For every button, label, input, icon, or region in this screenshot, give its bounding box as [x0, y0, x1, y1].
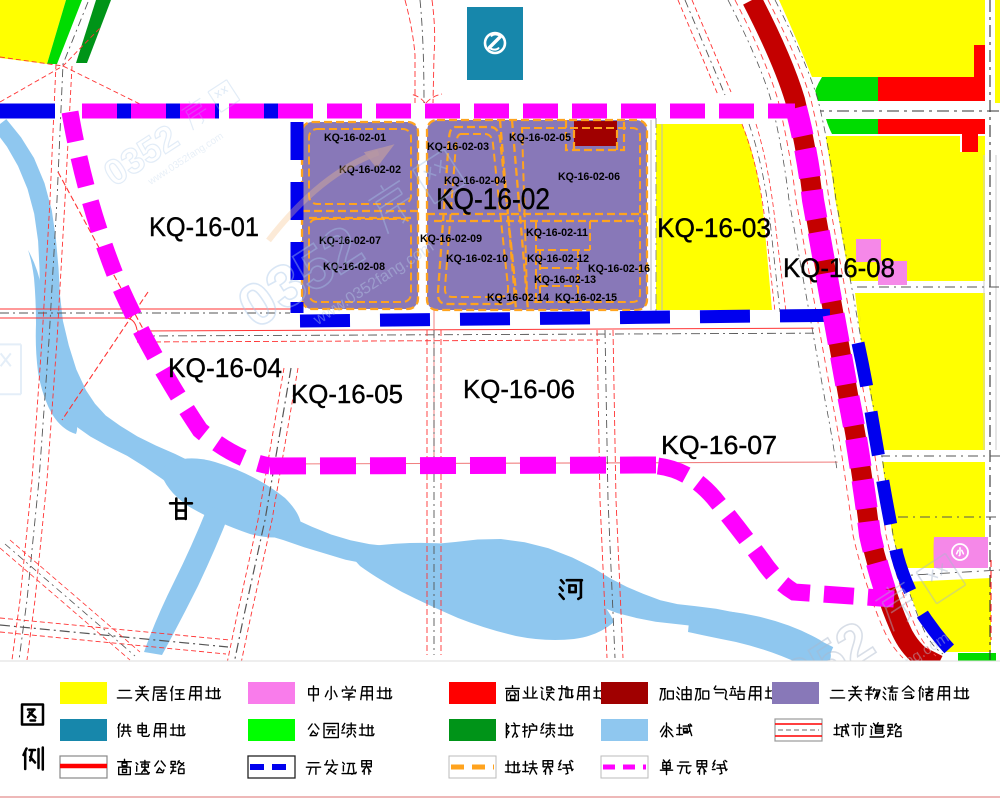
svg-text:KQ-16-02-12: KQ-16-02-12 [527, 253, 589, 265]
svg-text:KQ-16-07: KQ-16-07 [661, 430, 777, 460]
svg-text:KQ-16-02-06: KQ-16-02-06 [558, 171, 620, 183]
svg-text:KQ-16-02-11: KQ-16-02-11 [526, 227, 588, 239]
svg-text:KQ-16-02: KQ-16-02 [436, 183, 550, 216]
svg-text:KQ-16-02-16: KQ-16-02-16 [588, 263, 650, 275]
svg-text:KQ-16-02-03: KQ-16-02-03 [427, 141, 489, 153]
svg-text:KQ-16-01: KQ-16-01 [149, 212, 259, 242]
svg-text:KQ-16-02-05: KQ-16-02-05 [509, 132, 571, 144]
svg-text:KQ-16-02-01: KQ-16-02-01 [324, 132, 386, 144]
svg-text:KQ-16-04: KQ-16-04 [168, 353, 282, 383]
svg-text:KQ-16-02-14: KQ-16-02-14 [487, 292, 549, 304]
svg-text:KQ-16-02-04: KQ-16-02-04 [444, 175, 506, 187]
svg-text:KQ-16-08: KQ-16-08 [783, 253, 895, 283]
svg-text:KQ-16-05: KQ-16-05 [291, 379, 403, 409]
svg-text:KQ-16-02-13: KQ-16-02-13 [534, 274, 596, 286]
svg-text:KQ-16-02-10: KQ-16-02-10 [446, 253, 508, 265]
svg-text:KQ-16-03: KQ-16-03 [657, 213, 771, 243]
svg-text:KQ-16-02-15: KQ-16-02-15 [555, 292, 617, 304]
svg-text:KQ-16-06: KQ-16-06 [463, 374, 575, 404]
